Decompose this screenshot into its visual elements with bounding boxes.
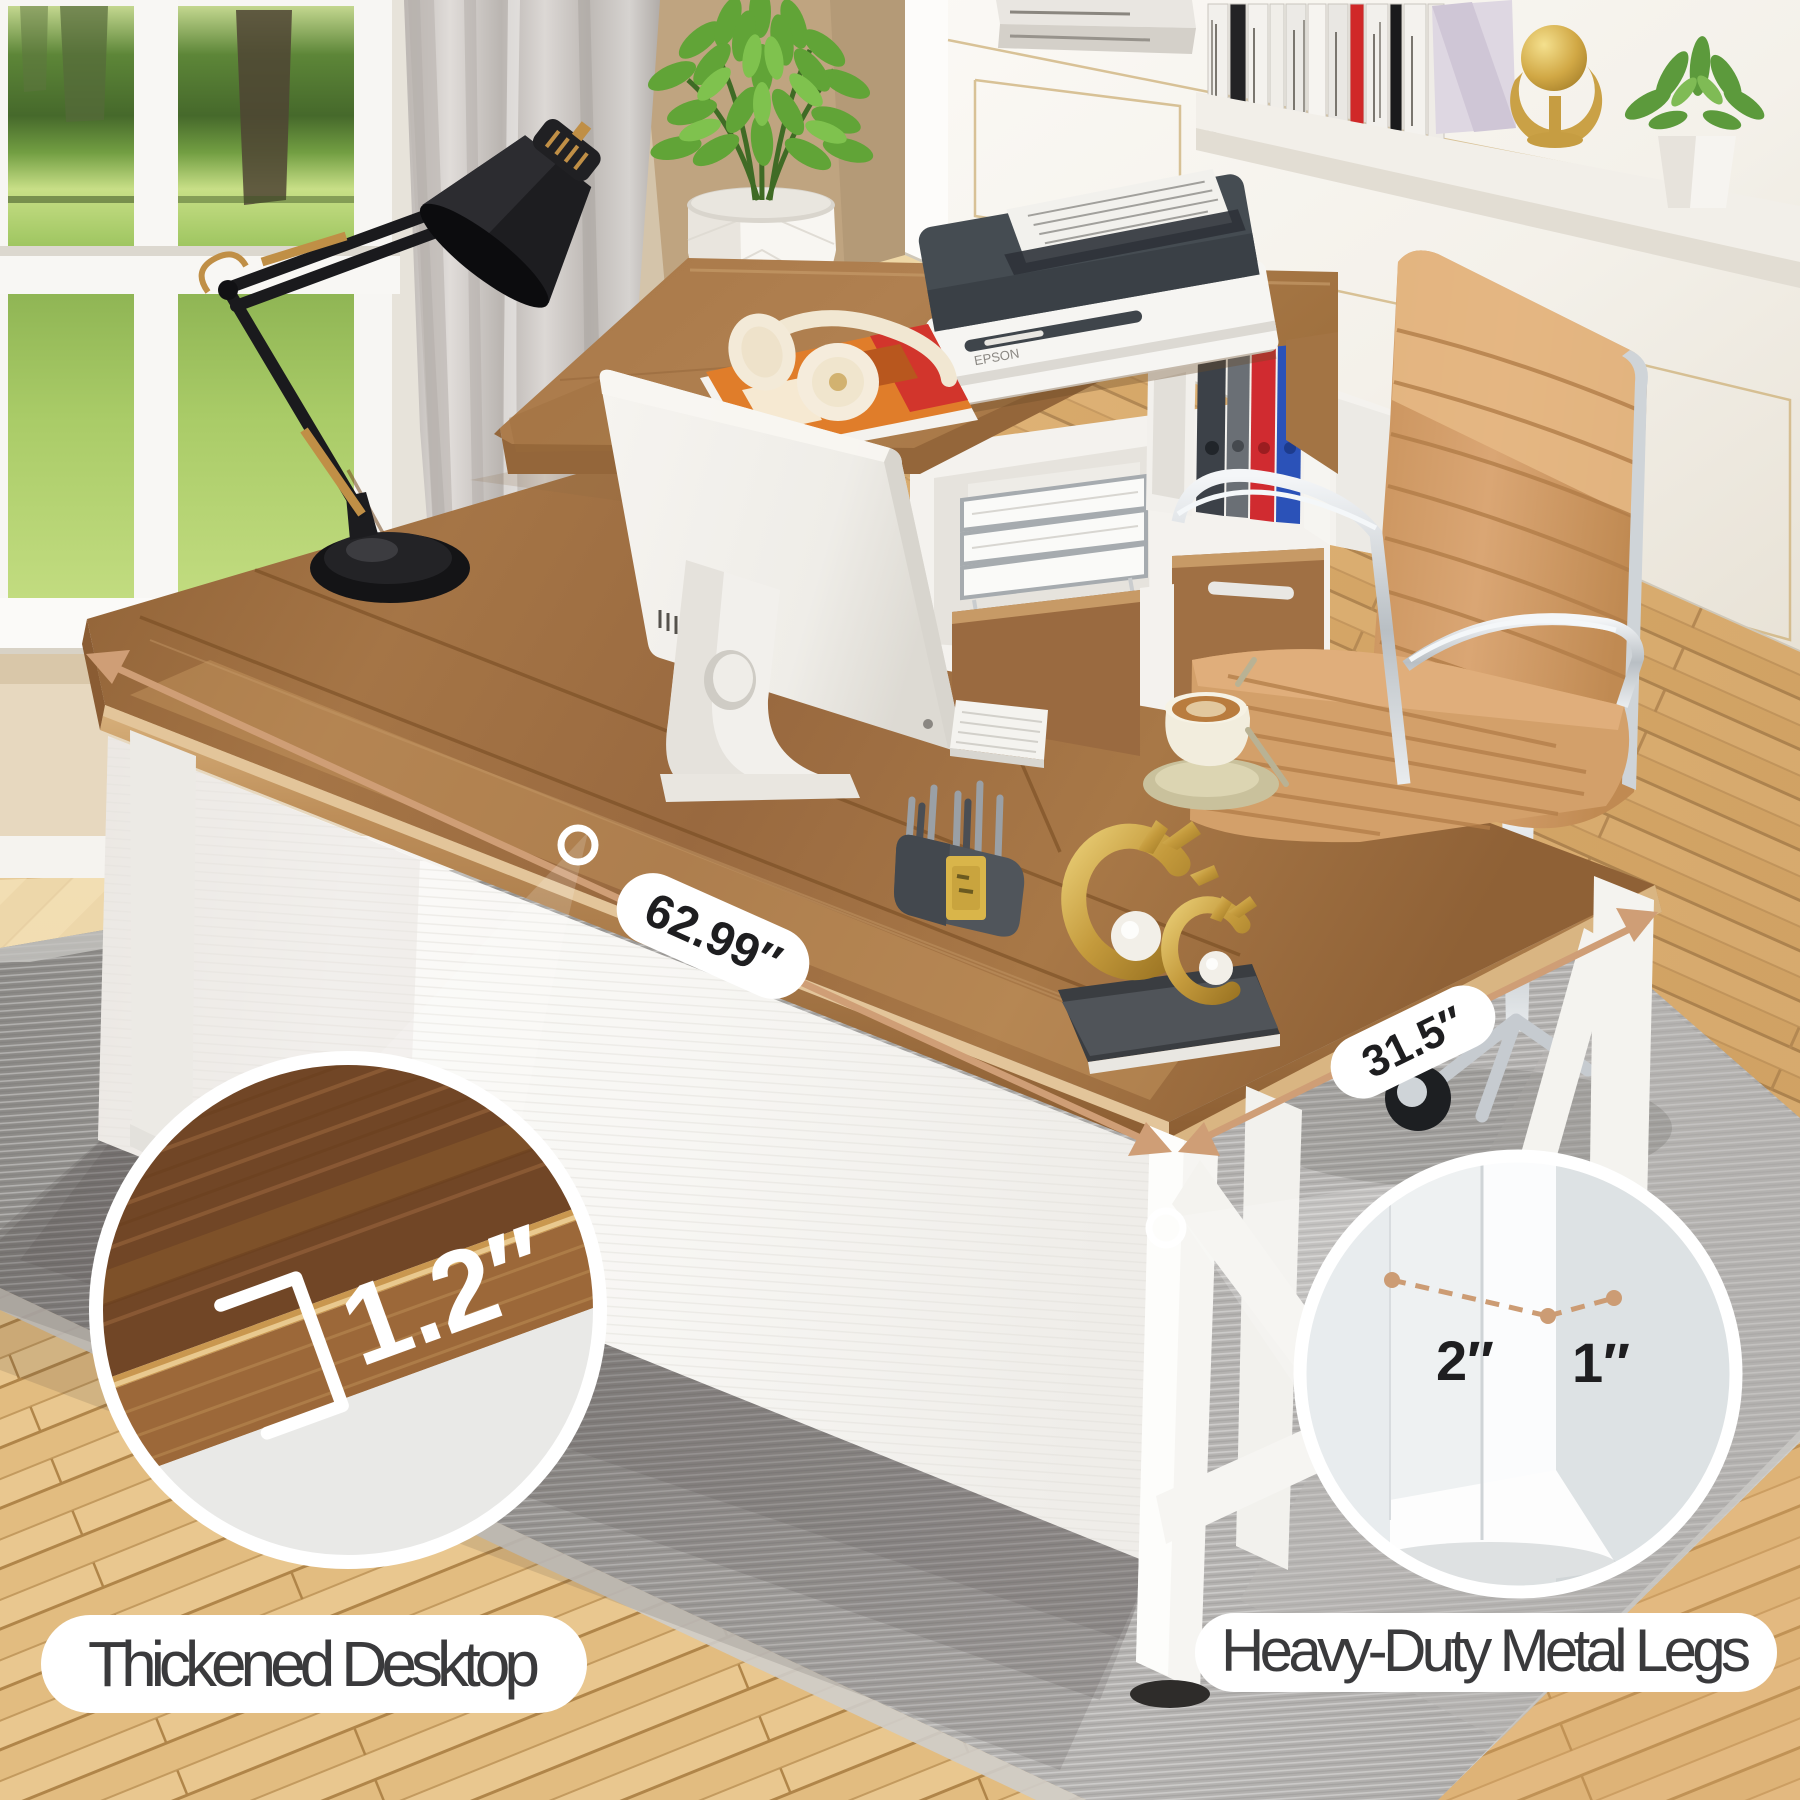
svg-text:Heavy-Duty Metal Legs: Heavy-Duty Metal Legs	[1221, 1617, 1751, 1684]
svg-text:2″: 2″	[1436, 1329, 1494, 1392]
svg-text:Thickened Desktop: Thickened Desktop	[88, 1628, 540, 1700]
svg-text:1″: 1″	[1572, 1331, 1630, 1394]
